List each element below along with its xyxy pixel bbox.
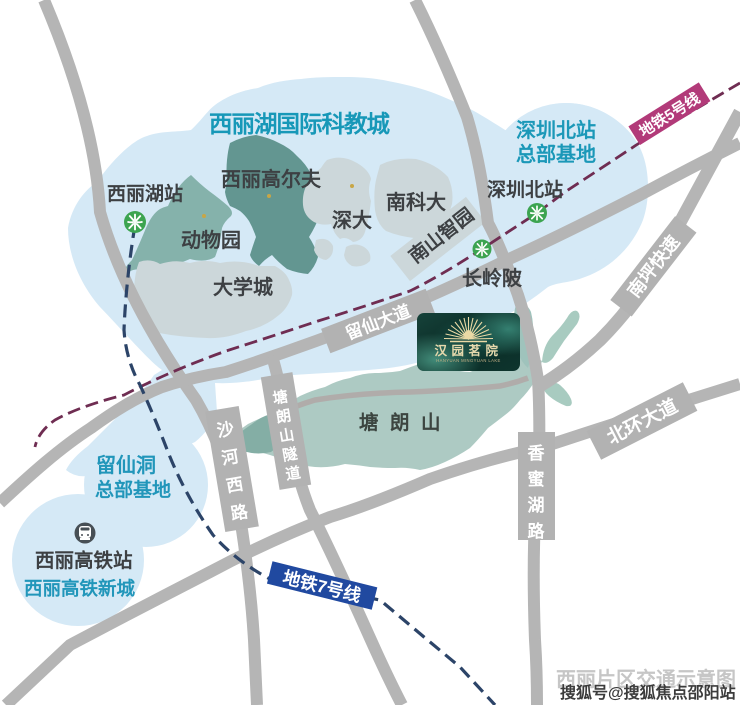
svg-text:塘朗山: 塘朗山 (359, 411, 452, 434)
svg-text:总部基地: 总部基地 (95, 478, 171, 501)
svg-text:动物园: 动物园 (181, 228, 241, 252)
svg-text:总部基地: 总部基地 (516, 142, 596, 166)
svg-text:搜狐号@搜狐焦点邵阳站: 搜狐号@搜狐焦点邵阳站 (560, 683, 736, 702)
svg-text:长岭陂: 长岭陂 (462, 266, 522, 290)
svg-text:西丽湖站: 西丽湖站 (107, 182, 183, 205)
svg-text:西丽高铁站: 西丽高铁站 (35, 549, 133, 572)
svg-text:汉园茗院: 汉园茗院 (434, 343, 502, 358)
svg-text:西丽湖国际科教城: 西丽湖国际科教城 (209, 110, 390, 137)
svg-text:西丽高尔夫: 西丽高尔夫 (221, 167, 322, 191)
svg-text:留仙洞: 留仙洞 (96, 453, 156, 477)
svg-text:大学城: 大学城 (213, 275, 273, 299)
svg-text:深圳北站: 深圳北站 (516, 118, 596, 142)
svg-text:西丽高铁新城: 西丽高铁新城 (24, 578, 136, 599)
svg-text:HANYUAN MINGYUAN LAKE: HANYUAN MINGYUAN LAKE (436, 358, 500, 363)
svg-text:南科大: 南科大 (386, 190, 446, 214)
svg-text:深圳北站: 深圳北站 (487, 178, 563, 201)
svg-text:深大: 深大 (332, 209, 372, 232)
